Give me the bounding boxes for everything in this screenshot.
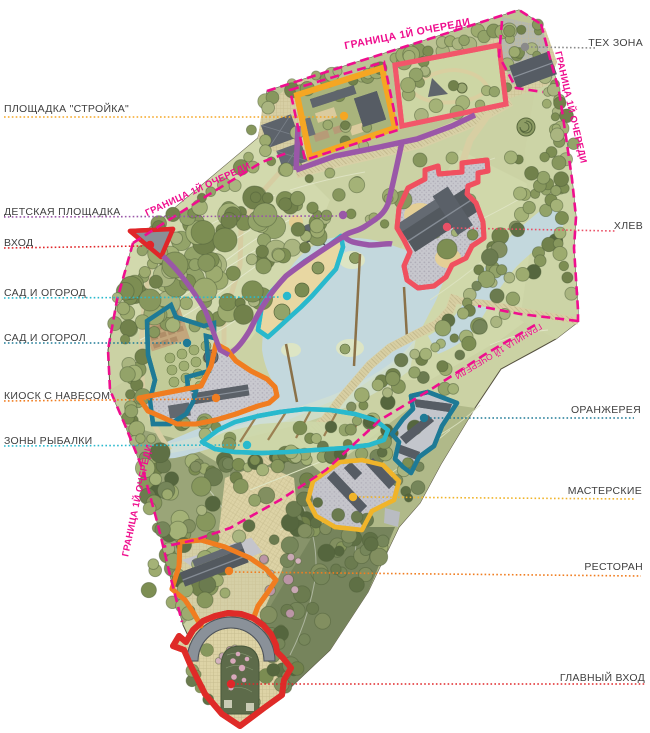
svg-text:ОРАНЖЕРЕЯ: ОРАНЖЕРЕЯ (571, 404, 641, 416)
svg-text:ПЛОЩАДКА "СТРОЙКА": ПЛОЩАДКА "СТРОЙКА" (4, 102, 129, 115)
svg-text:ГЛАВНЫЙ ВХОД: ГЛАВНЫЙ ВХОД (560, 671, 645, 684)
svg-text:ТЕХ ЗОНА: ТЕХ ЗОНА (588, 37, 643, 49)
svg-text:ХЛЕВ: ХЛЕВ (614, 220, 643, 232)
svg-text:РЕСТОРАН: РЕСТОРАН (584, 561, 643, 573)
svg-text:МАСТЕРСКИЕ: МАСТЕРСКИЕ (568, 485, 642, 497)
